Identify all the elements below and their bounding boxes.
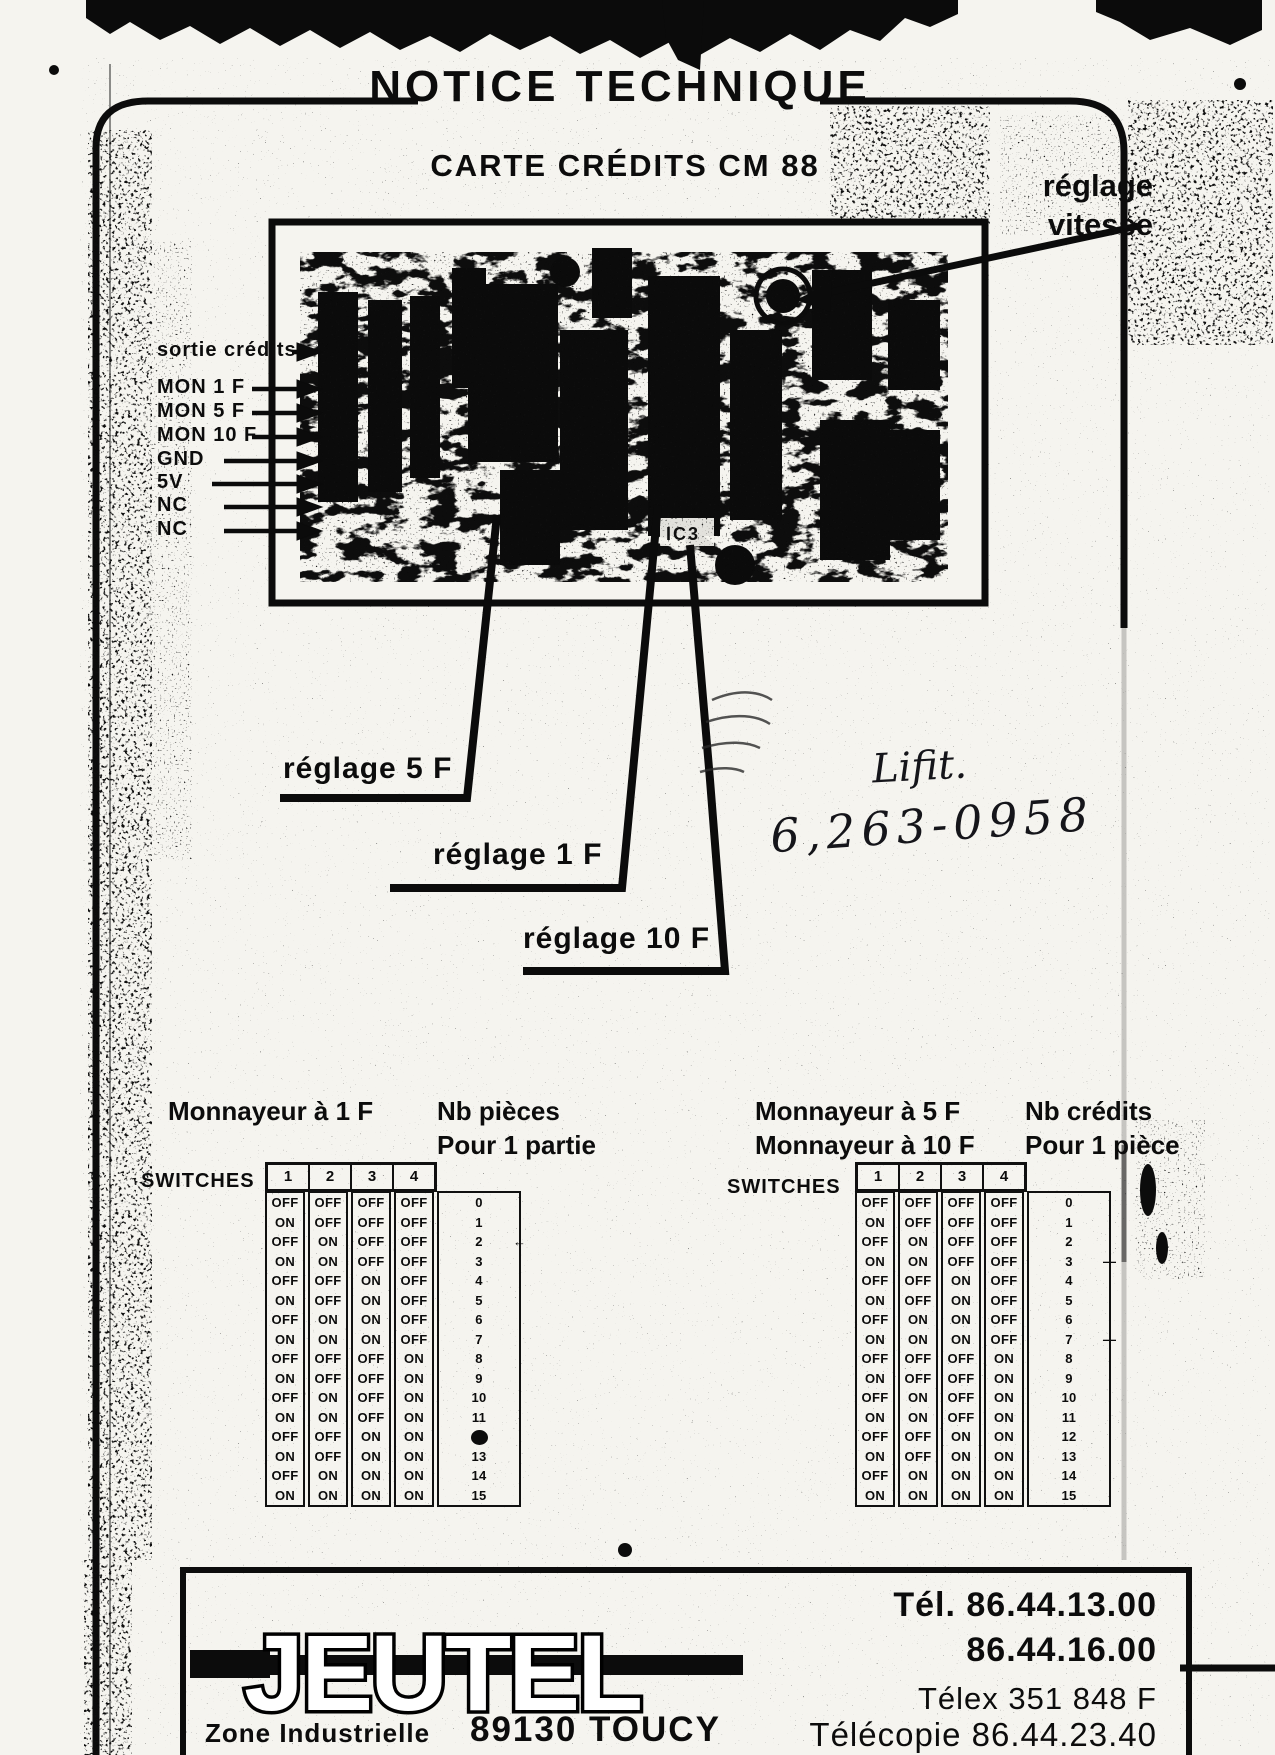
switch-state-cell: ON [396, 1349, 432, 1369]
switch-state-cell: OFF [986, 1330, 1022, 1350]
switch-state-cell: ON [943, 1447, 979, 1467]
switch-state-cell: ON [267, 1291, 303, 1311]
callout-reglage-1f: réglage 1 F [433, 838, 602, 872]
switch-state-cell: OFF [267, 1271, 303, 1291]
switch-state-cell: OFF [396, 1330, 432, 1350]
value-cell: 11 [439, 1408, 519, 1428]
handwritten-tick-mark: — [1103, 1330, 1116, 1350]
switch-state-cell: OFF [267, 1349, 303, 1369]
left-table-result-line1: Nb pièces [437, 1096, 560, 1127]
value-cell: 13 [1029, 1447, 1109, 1467]
value-cell: 6 [1029, 1310, 1109, 1330]
switch-state-cell: OFF [353, 1369, 389, 1389]
switch-state-cell: ON [900, 1408, 936, 1428]
switch-state-cell: OFF [900, 1213, 936, 1233]
right-table-coin-title1: Monnayeur à 5 F [755, 1096, 960, 1127]
switch-state-cell: ON [900, 1466, 936, 1486]
switch-state-cell: OFF [943, 1349, 979, 1369]
switch-column: OFFONOFFONOFFONOFFONOFFONOFFONOFFONOFFON [265, 1191, 305, 1507]
switch-column-header: 3 [942, 1165, 984, 1189]
switch-state-cell: OFF [396, 1271, 432, 1291]
switch-state-cell: ON [857, 1291, 893, 1311]
right-table-coin-title2: Monnayeur à 10 F [755, 1130, 975, 1161]
switch-state-cell: ON [986, 1447, 1022, 1467]
switch-state-cell: OFF [857, 1271, 893, 1291]
footer-address-line2: 89130 TOUCY [470, 1710, 721, 1750]
switch-state-cell: OFF [900, 1271, 936, 1291]
switch-state-cell: OFF [900, 1369, 936, 1389]
switch-state-cell: ON [396, 1447, 432, 1467]
connector-label: GND [157, 448, 204, 471]
switch-state-cell: ON [943, 1486, 979, 1506]
switch-state-cell: OFF [353, 1349, 389, 1369]
switch-state-cell: ON [396, 1388, 432, 1408]
switch-state-cell: OFF [986, 1310, 1022, 1330]
switch-state-cell: ON [353, 1330, 389, 1350]
switch-state-cell: ON [396, 1408, 432, 1428]
switch-state-cell: ON [986, 1466, 1022, 1486]
switch-state-cell: OFF [267, 1193, 303, 1213]
value-cell: 14 [439, 1466, 519, 1486]
switch-state-cell: ON [267, 1330, 303, 1350]
connector-label: NC [157, 518, 188, 541]
switch-state-cell: ON [986, 1369, 1022, 1389]
right-table-result-line2: Pour 1 pièce [1025, 1130, 1180, 1161]
switch-state-cell: ON [310, 1252, 346, 1272]
switch-state-cell: ON [943, 1310, 979, 1330]
footer-fax: Télécopie 86.44.23.40 [809, 1716, 1157, 1754]
value-cell: 4 [1029, 1271, 1109, 1291]
switch-state-cell: OFF [396, 1193, 432, 1213]
connector-label: MON 1 F [157, 376, 245, 399]
switch-state-cell: ON [353, 1447, 389, 1467]
left-table-result-line2: Pour 1 partie [437, 1130, 596, 1161]
value-cell: 8 [1029, 1349, 1109, 1369]
switch-state-cell: OFF [857, 1349, 893, 1369]
switch-state-cell: OFF [310, 1349, 346, 1369]
switch-state-cell: OFF [353, 1388, 389, 1408]
switch-state-cell: ON [353, 1310, 389, 1330]
switch-column: OFFOFFONONOFFOFFONONOFFOFFONONOFFOFFONON [308, 1191, 348, 1507]
handwritten-note: Lifit. [871, 742, 968, 793]
switch-state-cell: ON [986, 1388, 1022, 1408]
switch-state-cell: OFF [353, 1252, 389, 1272]
switch-column-header: 2 [310, 1165, 352, 1189]
switch-state-cell: ON [986, 1349, 1022, 1369]
value-cell: 14 [1029, 1466, 1109, 1486]
switch-state-cell: ON [396, 1466, 432, 1486]
switch-state-cell: ON [943, 1330, 979, 1350]
switch-state-cell: OFF [857, 1388, 893, 1408]
reglage-vitesse-line1: réglage [1043, 166, 1153, 205]
switch-state-cell: OFF [310, 1291, 346, 1311]
switch-state-cell: OFF [943, 1388, 979, 1408]
switch-state-cell: OFF [396, 1252, 432, 1272]
switch-state-cell: OFF [986, 1213, 1022, 1233]
switch-state-cell: OFF [310, 1447, 346, 1467]
switch-state-cell: OFF [943, 1408, 979, 1428]
switch-state-cell: OFF [857, 1466, 893, 1486]
switch-state-cell: ON [943, 1466, 979, 1486]
switch-state-cell: OFF [396, 1310, 432, 1330]
footer-telex: Télex 351 848 F [918, 1681, 1157, 1717]
switch-column: OFFONOFFONOFFONOFFONOFFONOFFONOFFONOFFON [855, 1191, 895, 1507]
switch-state-cell: OFF [267, 1388, 303, 1408]
connector-label: MON 10 F [157, 424, 257, 447]
value-cell: 5 [439, 1291, 519, 1311]
left-switch-table-values: 012←3456789101112131415 [437, 1191, 521, 1507]
reglage-vitesse-label: réglage vitesse [1043, 166, 1153, 244]
switch-state-cell: ON [900, 1388, 936, 1408]
switch-state-cell: ON [310, 1408, 346, 1428]
switch-state-cell: ON [857, 1447, 893, 1467]
switch-state-cell: ON [857, 1486, 893, 1506]
switch-state-cell: ON [900, 1330, 936, 1350]
switch-state-cell: OFF [943, 1232, 979, 1252]
switch-state-cell: ON [900, 1486, 936, 1506]
switch-state-cell: ON [353, 1466, 389, 1486]
switch-state-cell: OFF [900, 1447, 936, 1467]
switch-state-cell: ON [943, 1427, 979, 1447]
value-cell: 7— [1029, 1330, 1109, 1350]
switch-state-cell: OFF [900, 1193, 936, 1213]
switch-state-cell: OFF [986, 1232, 1022, 1252]
switch-state-cell: ON [267, 1252, 303, 1272]
switch-state-cell: OFF [353, 1408, 389, 1428]
reglage-vitesse-line2: vitesse [1043, 205, 1153, 244]
switch-state-cell: OFF [857, 1310, 893, 1330]
value-cell: 7 [439, 1330, 519, 1350]
right-switch-table-values: 0123—4567—89101112131415 [1027, 1191, 1111, 1507]
switch-state-cell: OFF [267, 1466, 303, 1486]
switch-state-cell: OFF [267, 1310, 303, 1330]
value-cell: 3— [1029, 1252, 1109, 1272]
value-cell: 1 [1029, 1213, 1109, 1233]
page-subtitle: CARTE CRÉDITS CM 88 [90, 148, 1160, 184]
switch-column-header: 4 [394, 1165, 434, 1189]
switch-column-header: 1 [268, 1165, 310, 1189]
value-cell: 13 [439, 1447, 519, 1467]
switch-state-cell: OFF [396, 1213, 432, 1233]
switch-state-cell: ON [857, 1252, 893, 1272]
switch-state-cell: OFF [900, 1349, 936, 1369]
switch-state-cell: ON [900, 1252, 936, 1272]
switch-column: OFFOFFOFFOFFONONONONOFFOFFOFFOFFONONONON [351, 1191, 391, 1507]
scanned-page: IC3 NOTICE TECHNIQUE CARTE CRÉDITS CM 88 [0, 0, 1275, 1755]
switch-state-cell: ON [900, 1232, 936, 1252]
footer-phone2: 86.44.16.00 [966, 1631, 1157, 1670]
connector-label: MON 5 F [157, 400, 245, 423]
switch-state-cell: ON [267, 1447, 303, 1467]
switch-state-cell: OFF [986, 1291, 1022, 1311]
switch-column-header: 1 [858, 1165, 900, 1189]
switch-state-cell: ON [943, 1291, 979, 1311]
right-switch-table-header: 1234 [855, 1162, 1027, 1192]
switch-state-cell: OFF [943, 1369, 979, 1389]
switch-state-cell: ON [310, 1310, 346, 1330]
switch-state-cell: ON [267, 1369, 303, 1389]
switch-state-cell: OFF [353, 1193, 389, 1213]
switch-state-cell: ON [310, 1486, 346, 1506]
switch-state-cell: OFF [310, 1213, 346, 1233]
switch-state-cell: ON [986, 1486, 1022, 1506]
switch-state-cell: OFF [396, 1232, 432, 1252]
switch-column: OFFOFFOFFOFFOFFOFFOFFOFFONONONONONONONON [984, 1191, 1024, 1507]
switch-state-cell: OFF [943, 1213, 979, 1233]
switch-state-cell: ON [353, 1291, 389, 1311]
switch-state-cell: ON [310, 1330, 346, 1350]
value-cell: 10 [439, 1388, 519, 1408]
switch-state-cell: OFF [900, 1427, 936, 1447]
switch-state-cell: OFF [310, 1271, 346, 1291]
value-cell: 8 [439, 1349, 519, 1369]
ink-blot [471, 1430, 488, 1445]
switch-state-cell: OFF [986, 1193, 1022, 1213]
switch-state-cell: OFF [943, 1252, 979, 1272]
connector-label: sortie crédits [157, 339, 297, 362]
switch-column: OFFOFFOFFOFFOFFOFFOFFOFFONONONONONONONON [394, 1191, 434, 1507]
left-switch-table-header: 1234 [265, 1162, 437, 1192]
connector-label: 5V [157, 471, 183, 494]
switch-state-cell: OFF [267, 1232, 303, 1252]
switch-column-header: 2 [900, 1165, 942, 1189]
switch-state-cell: ON [353, 1427, 389, 1447]
handwritten-tick-mark: ← [513, 1232, 526, 1252]
value-cell: 11 [1029, 1408, 1109, 1428]
value-cell: 2← [439, 1232, 519, 1252]
value-cell: 2 [1029, 1232, 1109, 1252]
callout-reglage-5f: réglage 5 F [283, 752, 452, 786]
right-switches-label: SWITCHES [727, 1176, 841, 1199]
value-cell: 12 [1029, 1427, 1109, 1447]
value-cell: 15 [439, 1486, 519, 1506]
switch-column: OFFOFFOFFOFFONONONONOFFOFFOFFOFFONONONON [941, 1191, 981, 1507]
callout-reglage-10f: réglage 10 F [523, 922, 710, 956]
switch-state-cell: OFF [857, 1193, 893, 1213]
switch-state-cell: OFF [900, 1291, 936, 1311]
connector-label: NC [157, 494, 188, 517]
value-cell: 12 [439, 1427, 519, 1447]
switch-column-header: 3 [352, 1165, 394, 1189]
footer-address-line1: Zone Industrielle [205, 1718, 430, 1749]
switch-state-cell: ON [396, 1427, 432, 1447]
switch-state-cell: ON [310, 1466, 346, 1486]
switch-state-cell: ON [396, 1369, 432, 1389]
value-cell: 9 [439, 1369, 519, 1389]
switch-state-cell: OFF [857, 1232, 893, 1252]
switch-state-cell: ON [900, 1310, 936, 1330]
switch-state-cell: ON [857, 1408, 893, 1428]
value-cell: 1 [439, 1213, 519, 1233]
switch-state-cell: OFF [353, 1213, 389, 1233]
switch-state-cell: ON [310, 1232, 346, 1252]
right-table-result-line1: Nb crédits [1025, 1096, 1152, 1127]
switch-state-cell: ON [267, 1213, 303, 1233]
value-cell: 10 [1029, 1388, 1109, 1408]
footer-phone1: Tél. 86.44.13.00 [893, 1586, 1157, 1625]
value-cell: 0 [1029, 1193, 1109, 1213]
switch-state-cell: ON [353, 1486, 389, 1506]
value-cell: 6 [439, 1310, 519, 1330]
switch-column-header: 4 [984, 1165, 1024, 1189]
switch-state-cell: ON [986, 1427, 1022, 1447]
switch-state-cell: ON [857, 1330, 893, 1350]
switch-state-cell: OFF [353, 1232, 389, 1252]
left-table-coin-title: Monnayeur à 1 F [168, 1096, 373, 1127]
switch-state-cell: OFF [857, 1427, 893, 1447]
handwritten-tick-mark: — [1103, 1252, 1116, 1272]
switch-state-cell: OFF [310, 1427, 346, 1447]
switch-state-cell: OFF [310, 1193, 346, 1213]
switch-state-cell: ON [857, 1369, 893, 1389]
switch-state-cell: OFF [396, 1291, 432, 1311]
right-switch-table-columns: OFFONOFFONOFFONOFFONOFFONOFFONOFFONOFFON… [855, 1191, 1024, 1507]
switch-state-cell: ON [396, 1486, 432, 1506]
left-switches-label: SWITCHES [141, 1170, 255, 1193]
page-title: NOTICE TECHNIQUE [0, 62, 1240, 112]
switch-state-cell: OFF [267, 1427, 303, 1447]
switch-state-cell: OFF [943, 1193, 979, 1213]
switch-state-cell: ON [267, 1486, 303, 1506]
switch-state-cell: ON [986, 1408, 1022, 1428]
value-cell: 3 [439, 1252, 519, 1272]
switch-state-cell: ON [353, 1271, 389, 1291]
switch-state-cell: OFF [986, 1252, 1022, 1272]
switch-state-cell: ON [943, 1271, 979, 1291]
switch-state-cell: ON [857, 1213, 893, 1233]
value-cell: 15 [1029, 1486, 1109, 1506]
value-cell: 9 [1029, 1369, 1109, 1389]
switch-state-cell: ON [267, 1408, 303, 1428]
switch-state-cell: OFF [310, 1369, 346, 1389]
value-cell: 0 [439, 1193, 519, 1213]
value-cell: 4 [439, 1271, 519, 1291]
left-switch-table-columns: OFFONOFFONOFFONOFFONOFFONOFFONOFFONOFFON… [265, 1191, 434, 1507]
value-cell: 5 [1029, 1291, 1109, 1311]
switch-column: OFFOFFONONOFFOFFONONOFFOFFONONOFFOFFONON [898, 1191, 938, 1507]
switch-state-cell: ON [310, 1388, 346, 1408]
switch-state-cell: OFF [986, 1271, 1022, 1291]
